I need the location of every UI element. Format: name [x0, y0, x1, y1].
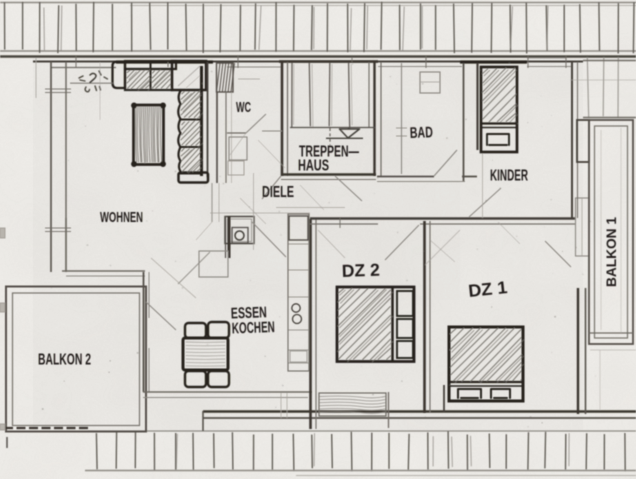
svg-text:WC: WC — [236, 100, 251, 116]
svg-text:DIELE: DIELE — [262, 184, 294, 201]
svg-text:DZ 1: DZ 1 — [467, 277, 508, 301]
svg-text:HAUS: HAUS — [298, 158, 329, 175]
svg-text:BAD: BAD — [410, 124, 434, 142]
svg-text:WOHNEN: WOHNEN — [100, 209, 143, 226]
svg-text:KOCHEN: KOCHEN — [232, 319, 276, 337]
svg-text:BALKON 2: BALKON 2 — [38, 352, 91, 369]
svg-text:KINDER: KINDER — [490, 168, 528, 185]
svg-text:BALKON 1: BALKON 1 — [603, 217, 619, 287]
svg-text:DZ 2: DZ 2 — [341, 260, 380, 281]
